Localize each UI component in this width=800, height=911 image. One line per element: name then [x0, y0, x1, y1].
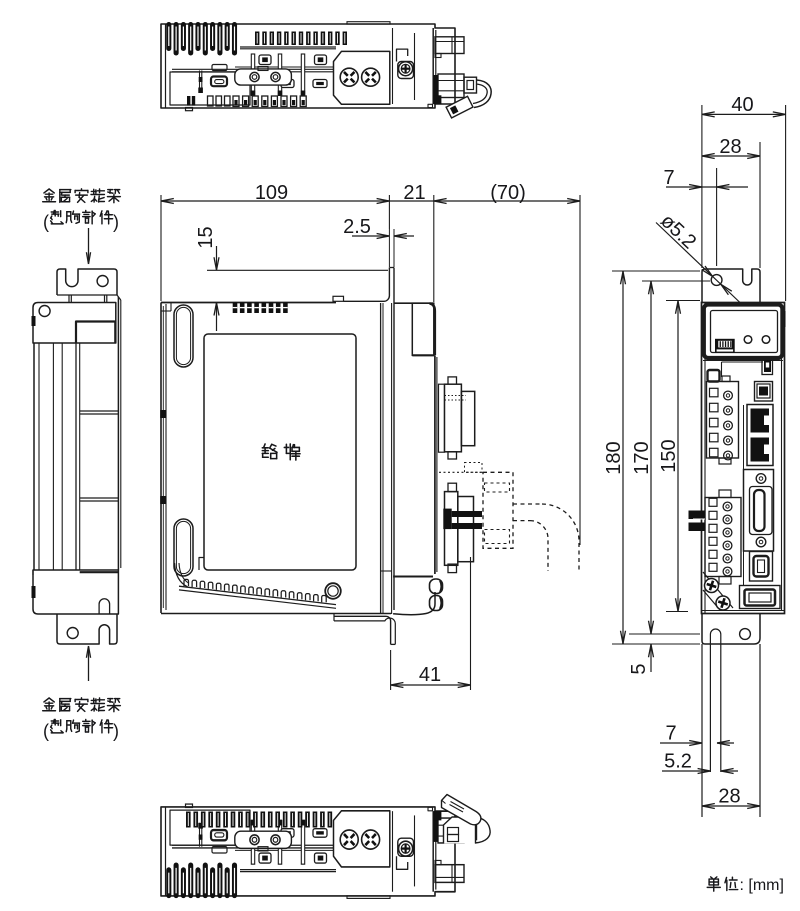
- svg-text:): ): [113, 212, 119, 232]
- svg-text:(: (: [43, 212, 49, 232]
- svg-text:40: 40: [731, 94, 753, 116]
- svg-text:2.5: 2.5: [343, 216, 371, 238]
- svg-text:7: 7: [665, 723, 676, 745]
- svg-text:5.2: 5.2: [664, 751, 692, 773]
- svg-text:21: 21: [403, 182, 425, 204]
- svg-text:28: 28: [719, 136, 741, 158]
- svg-text:150: 150: [658, 439, 680, 472]
- svg-text:15: 15: [195, 226, 217, 248]
- svg-text:(70): (70): [490, 182, 526, 204]
- svg-text:180: 180: [603, 441, 625, 474]
- svg-text:28: 28: [718, 786, 740, 808]
- svg-text:41: 41: [419, 664, 441, 686]
- svg-text:7: 7: [663, 167, 674, 189]
- svg-text:): ): [113, 721, 119, 741]
- svg-text:5: 5: [628, 663, 650, 674]
- svg-text:109: 109: [255, 182, 288, 204]
- svg-text:170: 170: [631, 441, 653, 474]
- svg-text:(: (: [43, 721, 49, 741]
- svg-text:: [mm]: : [mm]: [740, 877, 784, 894]
